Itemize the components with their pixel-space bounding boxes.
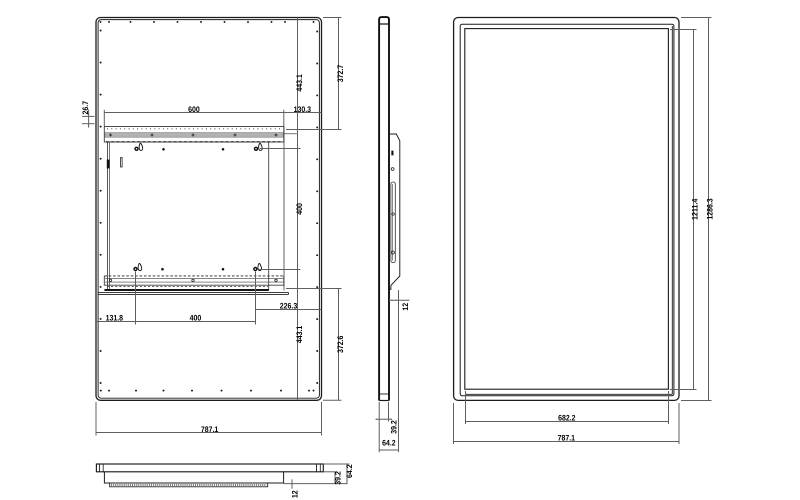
svg-text:443.1: 443.1 xyxy=(295,74,304,92)
svg-text:1286.3: 1286.3 xyxy=(706,198,715,220)
svg-text:443.1: 443.1 xyxy=(295,325,304,343)
svg-text:64.2: 64.2 xyxy=(382,439,396,448)
svg-text:131.8: 131.8 xyxy=(106,314,124,323)
svg-text:39.2: 39.2 xyxy=(389,420,398,434)
svg-text:400: 400 xyxy=(190,314,202,323)
svg-text:787.1: 787.1 xyxy=(558,433,576,442)
svg-text:787.1: 787.1 xyxy=(201,425,219,434)
svg-text:682.2: 682.2 xyxy=(558,413,576,422)
svg-text:12: 12 xyxy=(401,302,410,310)
svg-text:600: 600 xyxy=(188,105,200,114)
svg-text:26.7: 26.7 xyxy=(81,100,90,114)
svg-text:64.2: 64.2 xyxy=(345,464,354,478)
svg-text:372.7: 372.7 xyxy=(336,64,345,82)
svg-text:400: 400 xyxy=(295,203,304,215)
svg-text:226.3: 226.3 xyxy=(280,302,298,311)
svg-text:130.3: 130.3 xyxy=(294,105,312,114)
svg-text:12: 12 xyxy=(291,490,300,498)
svg-text:39.2: 39.2 xyxy=(333,471,342,485)
svg-text:372.6: 372.6 xyxy=(336,335,345,353)
svg-text:1211.4: 1211.4 xyxy=(691,198,700,220)
